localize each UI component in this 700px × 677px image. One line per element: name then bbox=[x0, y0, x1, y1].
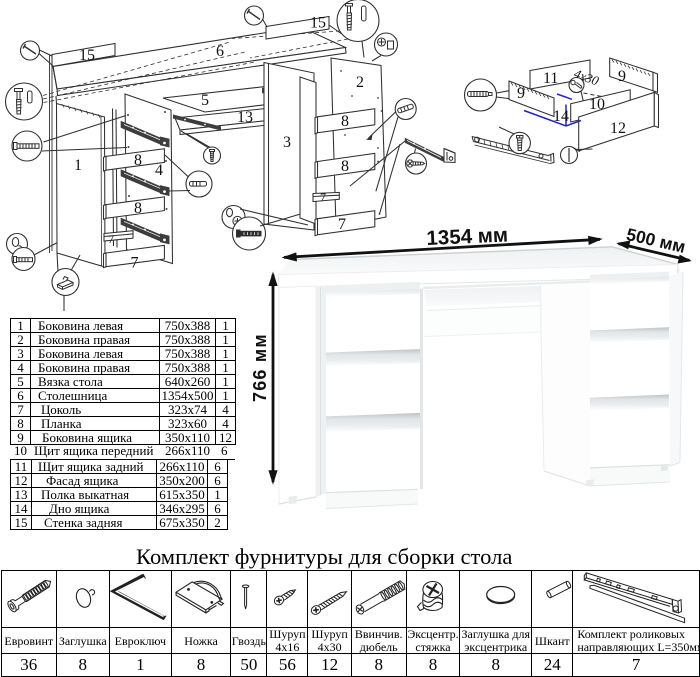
svg-text:5: 5 bbox=[201, 92, 209, 109]
svg-text:14: 14 bbox=[553, 108, 569, 125]
svg-text:7: 7 bbox=[108, 232, 114, 246]
svg-text:13: 13 bbox=[237, 109, 253, 126]
svg-text:8: 8 bbox=[341, 158, 349, 175]
svg-text:9: 9 bbox=[517, 85, 525, 102]
svg-text:15: 15 bbox=[310, 15, 326, 32]
svg-text:2: 2 bbox=[356, 74, 364, 91]
svg-text:1: 1 bbox=[74, 157, 82, 174]
svg-text:9: 9 bbox=[618, 68, 626, 85]
svg-text:11: 11 bbox=[543, 70, 558, 87]
svg-text:7: 7 bbox=[131, 255, 139, 272]
svg-text:7: 7 bbox=[338, 216, 346, 233]
svg-text:15: 15 bbox=[79, 47, 95, 64]
svg-text:7: 7 bbox=[320, 190, 326, 204]
svg-text:8: 8 bbox=[134, 152, 142, 169]
svg-text:8: 8 bbox=[341, 113, 349, 130]
svg-text:8: 8 bbox=[134, 200, 142, 217]
svg-text:4: 4 bbox=[155, 162, 163, 179]
svg-text:12: 12 bbox=[610, 120, 626, 137]
svg-text:3: 3 bbox=[283, 134, 291, 151]
